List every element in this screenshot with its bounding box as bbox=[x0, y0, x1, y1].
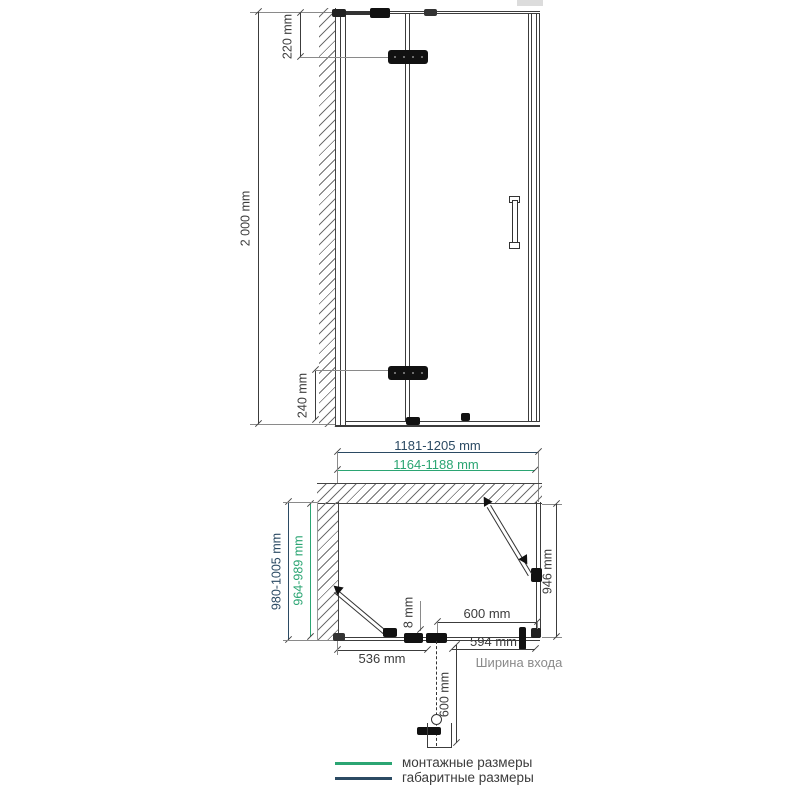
door-hinge-edge bbox=[405, 13, 406, 421]
legend-mounting-line bbox=[335, 762, 392, 765]
extension-line bbox=[542, 637, 562, 638]
bottom-door-block bbox=[461, 413, 470, 421]
open-door-handle bbox=[417, 727, 441, 735]
support-bar-wall-clamp bbox=[332, 9, 346, 17]
extension-line bbox=[283, 640, 335, 641]
wall-profile bbox=[345, 11, 346, 427]
dimension-line-overall-depth bbox=[288, 502, 289, 640]
right-frame bbox=[528, 13, 529, 421]
corner-artifact bbox=[517, 0, 543, 6]
top-hinge-offset-label: 220 mm bbox=[282, 11, 295, 63]
legend-overall-line bbox=[335, 777, 392, 780]
door-clearance-label: 600 mm bbox=[439, 669, 452, 721]
dimension-line bbox=[300, 13, 301, 57]
dimension-line-entrance bbox=[452, 649, 535, 650]
left-wall-hatch bbox=[317, 502, 339, 640]
side-panel-depth-label: 946 mm bbox=[542, 546, 555, 598]
right-frame bbox=[536, 13, 537, 421]
dimension-line bbox=[315, 370, 316, 420]
back-wall-hatch bbox=[317, 483, 542, 504]
right-frame bbox=[539, 13, 540, 421]
bottom-edge bbox=[335, 425, 540, 427]
fixed-panel-width-label: 536 mm bbox=[337, 652, 427, 665]
dimension-line-overall-width bbox=[337, 452, 538, 453]
support-bar-left bbox=[334, 589, 389, 637]
wall-profile bbox=[340, 11, 341, 427]
legend-mounting-label: монтажные размеры bbox=[402, 756, 532, 769]
door-handle bbox=[509, 242, 520, 249]
bottom-pivot-block bbox=[406, 417, 420, 425]
wall-profile-plan bbox=[333, 633, 345, 641]
entrance-width-label: 594 mm bbox=[452, 635, 535, 648]
support-bar-glass-clamp bbox=[370, 8, 390, 18]
dimension-line-clearance bbox=[456, 645, 457, 743]
overall-height-label: 2 000 mm bbox=[240, 187, 253, 251]
extension-line bbox=[283, 502, 317, 503]
door-width-label: 600 mm bbox=[437, 607, 537, 620]
extension-line bbox=[300, 57, 388, 58]
legend-overall-label: габаритные размеры bbox=[402, 771, 534, 784]
extension-line bbox=[542, 504, 562, 505]
mounting-depth-label: 964-989 mm bbox=[293, 529, 306, 613]
dimension-line-height bbox=[258, 12, 259, 424]
door-hinge-edge bbox=[409, 13, 410, 421]
open-door-edge bbox=[427, 723, 428, 747]
extension-line bbox=[437, 622, 438, 633]
support-bar-clamp-2 bbox=[424, 9, 437, 16]
extension-line bbox=[315, 370, 388, 371]
entrance-width-caption: Ширина входа bbox=[454, 656, 584, 669]
open-door-edge bbox=[427, 747, 452, 748]
overall-depth-label: 980-1005 mm bbox=[271, 526, 284, 618]
open-door-edge bbox=[451, 723, 452, 747]
extension-line bbox=[537, 622, 538, 629]
dimension-line-mounting-depth bbox=[310, 504, 311, 637]
support-bar-glass-bracket bbox=[383, 628, 397, 637]
right-frame bbox=[531, 13, 532, 421]
technical-drawing: 2 000 mm bbox=[0, 0, 800, 800]
overall-width-label: 1181-1205 mm bbox=[337, 439, 538, 452]
dimension-line-door-width bbox=[437, 622, 537, 623]
bottom-hinge-offset-label: 240 mm bbox=[297, 370, 310, 422]
glass-thickness-label: 8 mm bbox=[403, 593, 416, 633]
wall-hatch bbox=[319, 8, 336, 427]
door-handle-bar bbox=[512, 200, 518, 245]
extension-line bbox=[337, 452, 338, 483]
dimension-line-side-panel bbox=[556, 504, 557, 637]
dimension-line-mounting-width bbox=[337, 470, 535, 471]
bottom-edge-inner bbox=[345, 421, 540, 422]
door-hinge-plan bbox=[404, 633, 423, 643]
